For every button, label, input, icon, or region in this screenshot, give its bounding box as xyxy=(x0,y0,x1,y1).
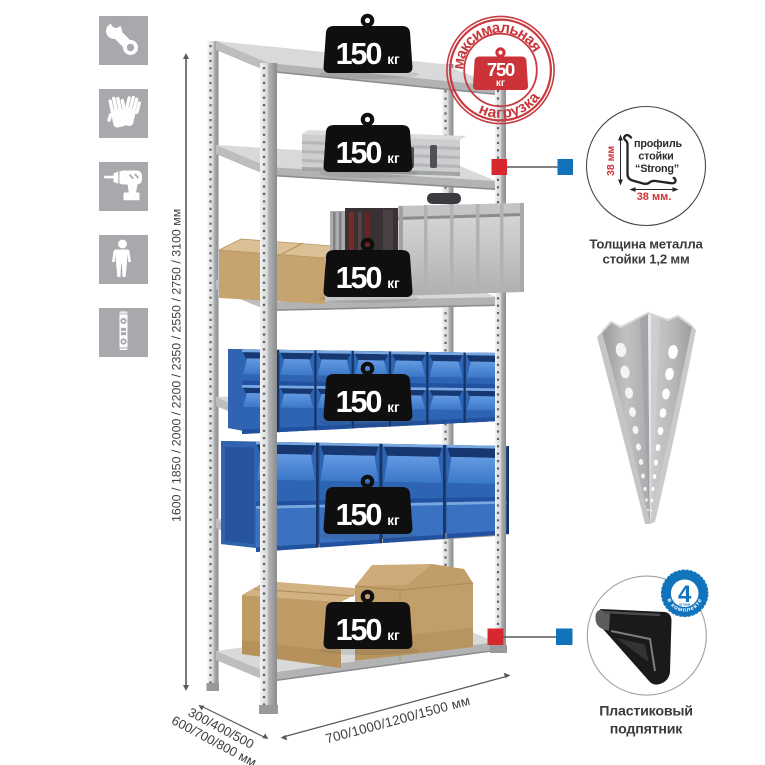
svg-text:Пластиковый: Пластиковый xyxy=(599,704,693,720)
svg-text:38 мм.: 38 мм. xyxy=(637,191,672,203)
svg-text:стойки 1,2 мм: стойки 1,2 мм xyxy=(602,252,689,267)
svg-text:Толщина металла: Толщина металла xyxy=(589,237,703,252)
svg-text:подпятник: подпятник xyxy=(610,722,684,738)
svg-text:профиль: профиль xyxy=(634,138,682,150)
svg-text:штуки: штуки xyxy=(679,603,690,607)
svg-text:кг: кг xyxy=(496,78,505,89)
svg-text:“Strong”: “Strong” xyxy=(635,163,679,175)
svg-text:750: 750 xyxy=(487,59,515,80)
svg-text:38 мм: 38 мм xyxy=(605,146,617,176)
svg-text:стойки: стойки xyxy=(638,151,673,163)
svg-text:1600 / 1850 / 2000 / 2200 / 23: 1600 / 1850 / 2000 / 2200 / 2350 / 2550 … xyxy=(170,209,184,522)
